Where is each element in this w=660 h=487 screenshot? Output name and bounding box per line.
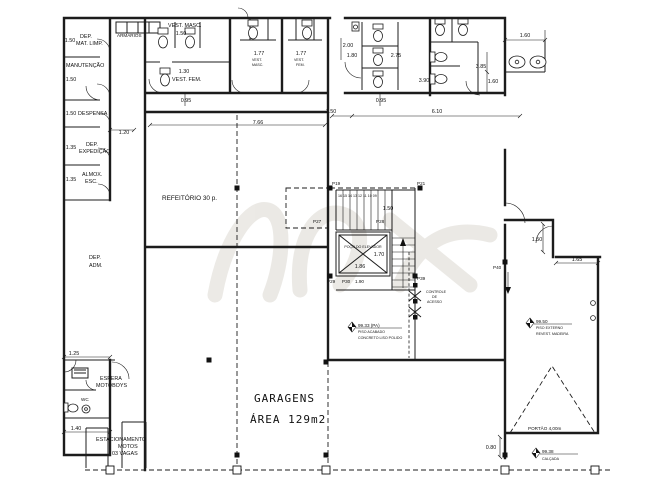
level-label-calcada-sub1: CALÇADA	[542, 457, 560, 461]
watermark	[215, 210, 490, 295]
dim-label: 1.50	[326, 109, 337, 115]
toilet-icon	[373, 71, 383, 88]
dim-label: 2.00	[343, 43, 354, 49]
dim-label: 1.50	[176, 31, 187, 37]
room-label-estacionamento-2: MOTOS	[118, 444, 138, 450]
room-label-garagens: GARAGENS	[254, 392, 315, 405]
label-controle: CONTROLE	[426, 290, 447, 294]
dim-label: 0.80	[486, 445, 497, 451]
dim-label: 3.85	[476, 64, 487, 70]
room-label-garagens-area: ÁREA 129m2	[250, 413, 326, 426]
dim-label: 1.50	[66, 77, 77, 83]
room-label-dep-expedicao: DEP.	[86, 142, 98, 148]
door-label-p40: P40	[493, 265, 502, 270]
room-label-dep-adm: DEP.	[89, 255, 101, 261]
room-label-vest2-fem-2: FEM.	[296, 63, 305, 67]
door-label-p19: P19	[332, 181, 341, 186]
room-label-manutencao: MANUTENÇÃO	[66, 62, 104, 69]
dim-label: 1.50	[383, 206, 394, 212]
toilet-icon	[458, 19, 468, 36]
door-label-p21: P21	[417, 181, 426, 186]
dim-label: 1.90	[355, 279, 364, 284]
label-elevador: POÇO DO ELEVADOR	[344, 245, 382, 249]
level-label-ext-sub2: REVEST. MADEIRA	[536, 332, 569, 336]
toilet-icon	[435, 19, 445, 36]
room-label-almox-2: ESC.	[85, 179, 98, 185]
door-label-p27: P27	[313, 219, 322, 224]
stair-step-numbers: 16 15 14 13 12 11 10 09	[338, 194, 377, 198]
dim-label: 1.50	[66, 111, 77, 117]
room-label-despensa: DESPENSA	[78, 111, 108, 117]
floor-plan-canvas: 1.50 DEP. MAT. LIMP. MANUTENÇÃO 1.50 1.5…	[0, 0, 660, 487]
room-label-almox: ALMOX.	[82, 172, 102, 178]
dim-label: 1.40	[71, 426, 82, 432]
label-controle-2: DE	[432, 295, 438, 299]
dim-label: 1.35	[66, 145, 77, 151]
room-label-espera: ESPERA	[100, 376, 122, 382]
gate-pivot-icon	[591, 301, 596, 321]
dim-label: 1.77	[296, 51, 307, 57]
dim-label: 1.60	[488, 79, 499, 85]
room-label-dep-expedicao-2: EXPEDIÇÃO	[79, 148, 110, 155]
gate-label: PORTÃO 4,00m	[528, 425, 562, 431]
label-armarios: ARMÁRIOS	[117, 32, 142, 38]
toilet-icon	[248, 20, 258, 39]
room-label-espera-2: MOTOBOYS	[96, 383, 127, 389]
door-label-p30: P30	[342, 279, 351, 284]
toilet-icon	[373, 24, 383, 42]
room-label-dep-mat-limp-2: MAT. LIMP.	[76, 41, 103, 47]
room-label-vest2-masc-2: MASC.	[252, 63, 263, 67]
dim-label: 1.70	[374, 252, 385, 258]
dim-label: 1.60	[520, 33, 531, 39]
dimension-lines	[62, 30, 600, 459]
level-label-pa: 99.33 (PA)	[358, 323, 380, 328]
walls-thick	[64, 18, 600, 470]
level-label-calcada: 99.38	[542, 449, 554, 454]
toilet-icon	[158, 28, 168, 48]
dim-label: 0.95	[181, 98, 192, 104]
dim-label: 1.77	[254, 51, 265, 57]
level-label-ext-sub1: PISO EXTERNO	[536, 326, 563, 330]
dim-label: 1.25	[69, 351, 80, 357]
room-label-estacionamento: ESTACIONAMENTO	[96, 437, 146, 443]
dashed-lines	[85, 115, 612, 470]
toilet-icon	[430, 74, 447, 84]
room-label-vest-masc: VEST. MASC.	[168, 23, 202, 29]
room-label-vest-fem: VEST. FEM.	[172, 77, 201, 83]
dim-label: 1.35	[66, 177, 77, 183]
dim-label: 1.65	[572, 257, 583, 263]
room-label-vest2-fem: VEST.	[294, 58, 304, 62]
room-label-vest2-masc: VEST.	[252, 58, 262, 62]
toilet-icon	[302, 20, 312, 39]
dim-label: 1.20	[119, 130, 130, 136]
dim-label: 1.50	[65, 38, 76, 44]
room-label-refeitorio: REFEITÓRIO 30 p.	[162, 193, 217, 202]
toilet-icon	[185, 28, 195, 48]
dim-label: 2.75	[391, 53, 402, 59]
sink-icon	[530, 56, 546, 68]
level-label-pa-sub2: CONCRETO LISO POLIDO	[358, 336, 402, 340]
toilet-icon	[373, 48, 383, 66]
dim-label: 1.80	[347, 53, 358, 59]
level-label-ext: 99.50	[536, 319, 548, 324]
level-label-pa-sub1: PISO ACABADO	[358, 330, 385, 334]
sink-icon	[82, 405, 90, 413]
door-label-p29: P29	[327, 279, 336, 284]
door-label-p28: P28	[376, 219, 385, 224]
door-label-p39: P39	[417, 276, 426, 281]
dim-label: 1.86	[355, 264, 366, 270]
dim-label: 7.66	[253, 120, 264, 126]
urinal-icon	[352, 22, 359, 31]
sink-icon	[509, 56, 525, 68]
roof-projection	[510, 366, 595, 433]
dim-label: 1.30	[179, 69, 190, 75]
room-label-wc: WC	[81, 397, 89, 402]
toilet-icon	[430, 52, 447, 62]
dim-label: 0.95	[376, 98, 387, 104]
dim-label: 1.50	[532, 237, 543, 243]
dim-label: 3.90	[419, 78, 430, 84]
floor-plan-svg: 1.50 DEP. MAT. LIMP. MANUTENÇÃO 1.50 1.5…	[0, 0, 660, 487]
toilet-icon	[64, 403, 78, 412]
room-label-estacionamento-3: 03 VAGAS	[112, 451, 138, 457]
staircase	[336, 190, 415, 288]
dim-label: 6.10	[432, 109, 443, 115]
label-controle-3: ACESSO	[427, 300, 442, 304]
room-label-dep-mat-limp: DEP.	[80, 34, 92, 40]
room-label-dep-adm-2: ADM.	[89, 263, 102, 269]
toilet-icon	[160, 68, 170, 86]
